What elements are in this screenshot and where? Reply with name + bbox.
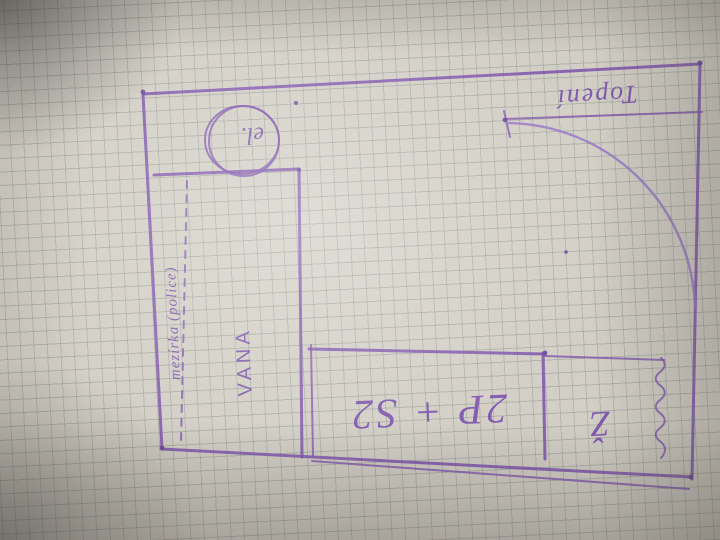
door-swing-arc [509,123,695,307]
scribbled-edge [656,358,665,458]
circle-label: el. [240,121,265,148]
circled-el-mark: el. [205,106,279,176]
floor-plan-drawing: el. Topení VANA mezírka (police) 2P + S2… [0,0,720,540]
heating-label: Topení [554,80,638,114]
appliance-label: 2P + S2 [349,385,509,438]
small-box-label: Ž [589,403,612,444]
bathtub-label: VANA [232,327,257,397]
shelf-gap-label: mezírka (police) [163,266,184,380]
photo-of-floor-plan-sketch: el. Topení VANA mezírka (police) 2P + S2… [0,0,720,540]
shelf-gap-dashed-line [181,181,187,441]
